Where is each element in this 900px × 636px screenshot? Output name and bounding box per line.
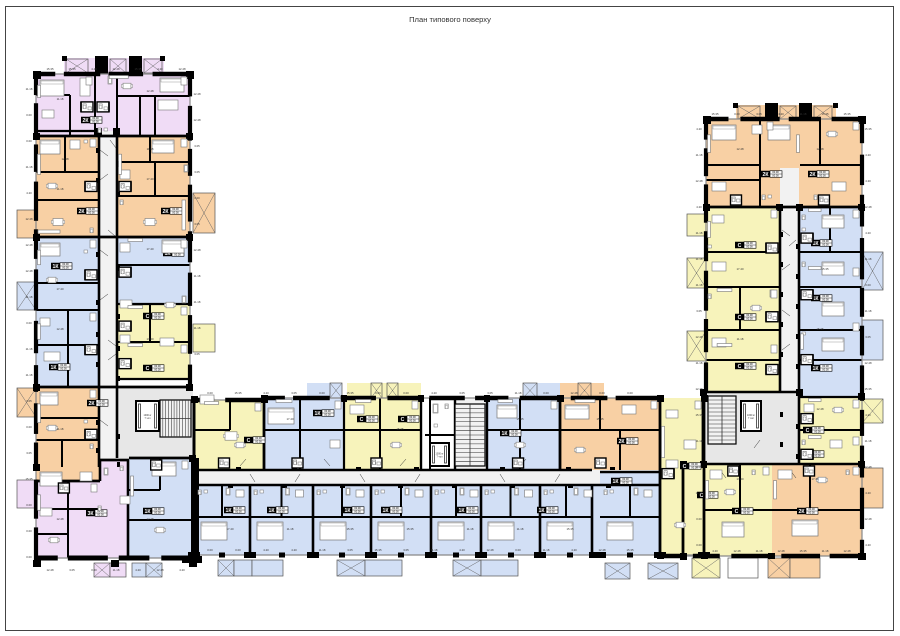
svg-text:12.48: 12.48 bbox=[844, 549, 851, 553]
svg-text:0.00: 0.00 bbox=[599, 391, 605, 395]
svg-text:7 чол: 7 чол bbox=[145, 417, 152, 420]
svg-text:11.18: 11.18 bbox=[194, 300, 201, 304]
svg-text:15.35: 15.35 bbox=[844, 112, 851, 116]
svg-text:11.18: 11.18 bbox=[696, 153, 703, 157]
svg-text:12.48: 12.48 bbox=[194, 248, 201, 252]
svg-text:0.00: 0.00 bbox=[865, 283, 871, 287]
svg-text:00.00: 00.00 bbox=[88, 210, 95, 214]
svg-text:4.20: 4.20 bbox=[263, 548, 269, 552]
svg-text:4.20: 4.20 bbox=[157, 67, 163, 71]
svg-text:1К: 1К bbox=[144, 509, 151, 515]
svg-text:0.00: 0.00 bbox=[515, 548, 521, 552]
svg-text:7 чол: 7 чол bbox=[437, 456, 444, 459]
svg-text:00.00: 00.00 bbox=[97, 512, 104, 516]
svg-text:4.20: 4.20 bbox=[459, 548, 465, 552]
svg-text:4.20: 4.20 bbox=[179, 568, 185, 572]
svg-text:11.18: 11.18 bbox=[319, 548, 326, 552]
svg-text:11.18: 11.18 bbox=[467, 527, 474, 531]
svg-text:3.05: 3.05 bbox=[865, 335, 871, 339]
svg-text:3.05: 3.05 bbox=[194, 222, 200, 226]
svg-text:12.48: 12.48 bbox=[571, 391, 578, 395]
svg-text:12.48: 12.48 bbox=[599, 548, 606, 552]
svg-text:00.00: 00.00 bbox=[255, 439, 262, 443]
svg-text:С: С bbox=[146, 366, 150, 372]
svg-text:0.00: 0.00 bbox=[375, 391, 381, 395]
svg-text:12.48: 12.48 bbox=[778, 549, 785, 553]
svg-text:12.48: 12.48 bbox=[865, 361, 872, 365]
svg-text:2К: 2К bbox=[762, 172, 769, 178]
svg-text:12.48: 12.48 bbox=[57, 517, 64, 521]
svg-text:00.00: 00.00 bbox=[324, 412, 331, 416]
svg-text:3.05: 3.05 bbox=[194, 352, 200, 356]
svg-text:11.18: 11.18 bbox=[696, 257, 703, 261]
svg-text:00.00: 00.00 bbox=[814, 429, 821, 433]
svg-text:2К: 2К bbox=[618, 439, 625, 445]
svg-text:4.20: 4.20 bbox=[91, 67, 97, 71]
svg-text:00.00: 00.00 bbox=[822, 242, 829, 246]
svg-text:15.35: 15.35 bbox=[26, 477, 33, 481]
svg-text:3.05: 3.05 bbox=[347, 548, 353, 552]
svg-text:15.35: 15.35 bbox=[375, 548, 382, 552]
svg-text:11.18: 11.18 bbox=[865, 309, 872, 313]
svg-text:С: С bbox=[146, 314, 150, 320]
svg-text:11.18: 11.18 bbox=[26, 347, 33, 351]
svg-text:1К: 1К bbox=[501, 431, 508, 437]
svg-text:12.48: 12.48 bbox=[696, 335, 703, 339]
svg-text:4.20: 4.20 bbox=[865, 179, 871, 183]
svg-text:11.18: 11.18 bbox=[543, 548, 550, 552]
svg-text:11.18: 11.18 bbox=[517, 527, 524, 531]
svg-text:2К: 2К bbox=[809, 172, 816, 178]
svg-text:17.40: 17.40 bbox=[147, 177, 154, 181]
svg-text:4.20: 4.20 bbox=[135, 568, 141, 572]
svg-text:00.00: 00.00 bbox=[746, 244, 753, 248]
svg-text:4.20: 4.20 bbox=[712, 549, 718, 553]
svg-text:11.18: 11.18 bbox=[696, 361, 703, 365]
svg-text:00.00: 00.00 bbox=[98, 402, 105, 406]
svg-text:4.20: 4.20 bbox=[865, 413, 871, 417]
svg-text:00.00: 00.00 bbox=[368, 418, 375, 422]
svg-text:00.00: 00.00 bbox=[172, 210, 179, 214]
svg-text:11.18: 11.18 bbox=[696, 439, 703, 443]
svg-text:17.40: 17.40 bbox=[227, 527, 234, 531]
svg-text:12.48: 12.48 bbox=[47, 568, 54, 572]
svg-text:00.00: 00.00 bbox=[409, 418, 416, 422]
svg-text:0.00: 0.00 bbox=[26, 503, 32, 507]
svg-text:4.20: 4.20 bbox=[291, 548, 297, 552]
svg-text:15.35: 15.35 bbox=[47, 67, 54, 71]
svg-text:12.48: 12.48 bbox=[696, 387, 703, 391]
svg-text:3.05: 3.05 bbox=[194, 144, 200, 148]
svg-text:12.48: 12.48 bbox=[194, 118, 201, 122]
svg-text:4.20: 4.20 bbox=[431, 391, 437, 395]
svg-text:2К: 2К bbox=[82, 118, 89, 124]
svg-text:2К: 2К bbox=[798, 509, 805, 515]
svg-text:3.05: 3.05 bbox=[403, 548, 409, 552]
svg-text:17.40: 17.40 bbox=[737, 267, 744, 271]
svg-text:0.00: 0.00 bbox=[26, 139, 32, 143]
svg-text:11.18: 11.18 bbox=[57, 427, 64, 431]
svg-text:17.40: 17.40 bbox=[147, 337, 154, 341]
svg-text:2К: 2К bbox=[78, 209, 85, 215]
svg-text:1К: 1К bbox=[268, 508, 275, 514]
svg-text:11.18: 11.18 bbox=[696, 231, 703, 235]
svg-text:1К: 1К bbox=[225, 508, 232, 514]
svg-text:4.20: 4.20 bbox=[26, 191, 32, 195]
svg-text:00.00: 00.00 bbox=[154, 510, 161, 514]
svg-text:00.00: 00.00 bbox=[708, 494, 715, 498]
svg-text:2К: 2К bbox=[162, 209, 169, 215]
svg-text:15.35: 15.35 bbox=[597, 417, 604, 421]
svg-text:1К: 1К bbox=[50, 365, 57, 371]
svg-text:11.18: 11.18 bbox=[515, 391, 522, 395]
svg-text:00.00: 00.00 bbox=[392, 509, 399, 513]
svg-text:С: С bbox=[735, 509, 739, 515]
svg-text:11.18: 11.18 bbox=[147, 147, 154, 151]
svg-text:00.00: 00.00 bbox=[808, 510, 815, 514]
svg-text:4.20: 4.20 bbox=[571, 548, 577, 552]
svg-text:План типового поверху: План типового поверху bbox=[409, 15, 491, 24]
svg-text:4.20: 4.20 bbox=[865, 491, 871, 495]
svg-text:0.00: 0.00 bbox=[26, 113, 32, 117]
svg-text:00.00: 00.00 bbox=[154, 315, 161, 319]
svg-text:12.48: 12.48 bbox=[865, 205, 872, 209]
svg-text:15.35: 15.35 bbox=[347, 527, 354, 531]
svg-text:00.00: 00.00 bbox=[511, 432, 518, 436]
svg-text:11.18: 11.18 bbox=[26, 87, 33, 91]
svg-text:00.00: 00.00 bbox=[622, 480, 629, 484]
svg-text:0.00: 0.00 bbox=[26, 529, 32, 533]
svg-text:17.40: 17.40 bbox=[812, 477, 819, 481]
svg-text:3.05: 3.05 bbox=[459, 391, 465, 395]
svg-text:15.35: 15.35 bbox=[627, 548, 634, 552]
svg-text:7 чол: 7 чол bbox=[748, 417, 755, 420]
svg-text:4.20: 4.20 bbox=[696, 127, 702, 131]
svg-text:15.35: 15.35 bbox=[69, 67, 76, 71]
svg-text:11.18: 11.18 bbox=[865, 439, 872, 443]
svg-text:С: С bbox=[806, 428, 810, 434]
svg-text:00.00: 00.00 bbox=[154, 367, 161, 371]
svg-text:00.00: 00.00 bbox=[628, 440, 635, 444]
svg-text:12.48: 12.48 bbox=[57, 327, 64, 331]
svg-text:0.00: 0.00 bbox=[207, 391, 213, 395]
svg-text:0.00: 0.00 bbox=[91, 568, 97, 572]
svg-text:0.00: 0.00 bbox=[26, 321, 32, 325]
svg-text:00.00: 00.00 bbox=[746, 316, 753, 320]
svg-text:0.00: 0.00 bbox=[194, 196, 200, 200]
svg-text:11.18: 11.18 bbox=[756, 549, 763, 553]
svg-text:17.40: 17.40 bbox=[287, 417, 294, 421]
svg-text:0.00: 0.00 bbox=[403, 391, 409, 395]
svg-text:С: С bbox=[738, 315, 742, 321]
svg-text:0.00: 0.00 bbox=[26, 425, 32, 429]
svg-text:12.48: 12.48 bbox=[147, 517, 154, 521]
svg-text:15.35: 15.35 bbox=[567, 527, 574, 531]
svg-text:С: С bbox=[360, 417, 364, 423]
svg-text:00.00: 00.00 bbox=[743, 510, 750, 514]
svg-text:00.00: 00.00 bbox=[822, 297, 829, 301]
svg-text:12.48: 12.48 bbox=[696, 179, 703, 183]
svg-text:00.00: 00.00 bbox=[746, 365, 753, 369]
svg-text:4.20: 4.20 bbox=[865, 231, 871, 235]
svg-text:3.05: 3.05 bbox=[696, 465, 702, 469]
svg-text:15.35: 15.35 bbox=[817, 327, 824, 331]
svg-text:11.18: 11.18 bbox=[57, 187, 64, 191]
svg-text:3.05: 3.05 bbox=[194, 170, 200, 174]
svg-text:12.48: 12.48 bbox=[194, 92, 201, 96]
svg-text:11.18: 11.18 bbox=[26, 295, 33, 299]
svg-text:15.35: 15.35 bbox=[347, 391, 354, 395]
svg-text:11.18: 11.18 bbox=[194, 274, 201, 278]
svg-text:2К: 2К bbox=[88, 401, 95, 407]
svg-text:1К: 1К bbox=[344, 508, 351, 514]
svg-text:15.35: 15.35 bbox=[712, 112, 719, 116]
svg-text:15.35: 15.35 bbox=[397, 427, 404, 431]
svg-text:0.00: 0.00 bbox=[627, 391, 633, 395]
svg-text:3.05: 3.05 bbox=[69, 568, 75, 572]
svg-text:12.48: 12.48 bbox=[734, 549, 741, 553]
svg-text:00.00: 00.00 bbox=[235, 509, 242, 513]
svg-text:0.00: 0.00 bbox=[207, 548, 213, 552]
svg-text:11.18: 11.18 bbox=[696, 283, 703, 287]
svg-text:11.18: 11.18 bbox=[696, 491, 703, 495]
svg-text:11.18: 11.18 bbox=[800, 112, 807, 116]
svg-text:15.35: 15.35 bbox=[800, 549, 807, 553]
svg-text:15.35: 15.35 bbox=[696, 413, 703, 417]
svg-text:12.48: 12.48 bbox=[817, 147, 824, 151]
svg-text:00.00: 00.00 bbox=[822, 367, 829, 371]
svg-text:11.18: 11.18 bbox=[822, 549, 829, 553]
svg-text:15.35: 15.35 bbox=[407, 527, 414, 531]
svg-text:4.20: 4.20 bbox=[778, 112, 784, 116]
svg-text:1К: 1К bbox=[458, 508, 465, 514]
svg-text:12.48: 12.48 bbox=[62, 157, 69, 161]
svg-text:0.00: 0.00 bbox=[543, 391, 549, 395]
svg-text:0.00: 0.00 bbox=[26, 555, 32, 559]
svg-text:17.40: 17.40 bbox=[737, 477, 744, 481]
svg-text:00.00: 00.00 bbox=[814, 453, 821, 457]
svg-text:1К: 1К bbox=[612, 479, 619, 485]
svg-text:1К: 1К bbox=[314, 411, 321, 417]
svg-text:0.00: 0.00 bbox=[235, 548, 241, 552]
svg-text:12.48: 12.48 bbox=[26, 269, 33, 273]
svg-text:00.00: 00.00 bbox=[278, 509, 285, 513]
svg-text:11.18: 11.18 bbox=[57, 97, 64, 101]
svg-text:00.00: 00.00 bbox=[92, 119, 99, 123]
svg-text:15.35: 15.35 bbox=[822, 112, 829, 116]
svg-text:15.35: 15.35 bbox=[135, 67, 142, 71]
svg-text:0.00: 0.00 bbox=[319, 391, 325, 395]
svg-text:12.48: 12.48 bbox=[147, 89, 154, 93]
svg-text:00.00: 00.00 bbox=[60, 366, 67, 370]
svg-text:12.48: 12.48 bbox=[26, 243, 33, 247]
svg-text:00.00: 00.00 bbox=[548, 509, 555, 513]
svg-text:00.00: 00.00 bbox=[819, 173, 826, 177]
svg-text:0.00: 0.00 bbox=[734, 112, 740, 116]
svg-text:С: С bbox=[683, 464, 687, 470]
svg-text:1К: 1К bbox=[538, 508, 545, 514]
svg-text:11.18: 11.18 bbox=[287, 527, 294, 531]
svg-text:17.40: 17.40 bbox=[147, 247, 154, 251]
svg-text:15.35: 15.35 bbox=[517, 417, 524, 421]
svg-text:С: С bbox=[401, 417, 405, 423]
svg-text:12.48: 12.48 bbox=[157, 568, 164, 572]
svg-text:1К: 1К bbox=[382, 508, 389, 514]
svg-text:3.05: 3.05 bbox=[291, 391, 297, 395]
svg-text:С: С bbox=[738, 243, 742, 249]
svg-text:3.05: 3.05 bbox=[756, 112, 762, 116]
svg-text:3.05: 3.05 bbox=[696, 309, 702, 313]
svg-text:00.00: 00.00 bbox=[468, 509, 475, 513]
svg-text:0.00: 0.00 bbox=[696, 517, 702, 521]
svg-text:12.48: 12.48 bbox=[817, 407, 824, 411]
svg-text:12.48: 12.48 bbox=[26, 217, 33, 221]
svg-text:15.35: 15.35 bbox=[865, 387, 872, 391]
svg-text:4.20: 4.20 bbox=[696, 205, 702, 209]
svg-text:17.40: 17.40 bbox=[57, 287, 64, 291]
svg-text:15.35: 15.35 bbox=[822, 267, 829, 271]
svg-text:11.18: 11.18 bbox=[737, 337, 744, 341]
svg-text:15.35: 15.35 bbox=[235, 391, 242, 395]
svg-text:12.48: 12.48 bbox=[179, 67, 186, 71]
svg-text:11.18: 11.18 bbox=[26, 165, 33, 169]
svg-text:12.48: 12.48 bbox=[865, 517, 872, 521]
svg-text:3К: 3К bbox=[87, 511, 94, 517]
svg-text:12.48: 12.48 bbox=[113, 67, 120, 71]
svg-text:С: С bbox=[247, 438, 251, 444]
svg-text:4.20: 4.20 bbox=[263, 391, 269, 395]
svg-text:11.18: 11.18 bbox=[865, 257, 872, 261]
svg-text:11.18: 11.18 bbox=[194, 326, 201, 330]
svg-text:00.00: 00.00 bbox=[354, 509, 361, 513]
svg-text:11.18: 11.18 bbox=[113, 568, 120, 572]
svg-text:11.18: 11.18 bbox=[26, 373, 33, 377]
svg-text:0.00: 0.00 bbox=[696, 543, 702, 547]
svg-text:1К: 1К bbox=[812, 366, 819, 372]
svg-text:11.18: 11.18 bbox=[431, 548, 438, 552]
svg-text:15.35: 15.35 bbox=[865, 127, 872, 131]
svg-text:00.00: 00.00 bbox=[62, 265, 69, 269]
svg-text:00.00: 00.00 bbox=[772, 173, 779, 177]
svg-text:12.48: 12.48 bbox=[865, 465, 872, 469]
svg-text:12.48: 12.48 bbox=[737, 147, 744, 151]
svg-text:1К: 1К bbox=[52, 264, 59, 270]
svg-text:3.05: 3.05 bbox=[26, 451, 32, 455]
svg-text:С: С bbox=[738, 364, 742, 370]
svg-text:4.20: 4.20 bbox=[865, 543, 871, 547]
svg-text:12.48: 12.48 bbox=[487, 548, 494, 552]
svg-text:3.05: 3.05 bbox=[26, 399, 32, 403]
svg-text:4.20: 4.20 bbox=[865, 153, 871, 157]
svg-text:3.05: 3.05 bbox=[487, 391, 493, 395]
